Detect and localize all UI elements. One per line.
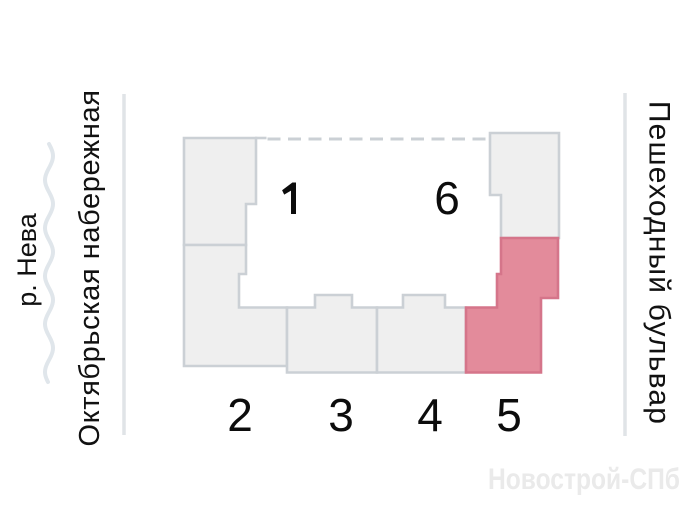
svg-text:3: 3	[328, 389, 354, 441]
svg-text:2: 2	[227, 389, 253, 441]
svg-text:Новострой-СПб: Новострой-СПб	[488, 463, 680, 496]
svg-text:4: 4	[417, 389, 443, 441]
svg-text:5: 5	[496, 389, 522, 441]
svg-text:р. Нева: р. Нева	[12, 212, 42, 307]
svg-text:Пешеходный бульвар: Пешеходный бульвар	[643, 101, 676, 425]
svg-text:6: 6	[434, 172, 460, 224]
svg-text:Октябрьская набережная: Октябрьская набережная	[74, 89, 106, 446]
